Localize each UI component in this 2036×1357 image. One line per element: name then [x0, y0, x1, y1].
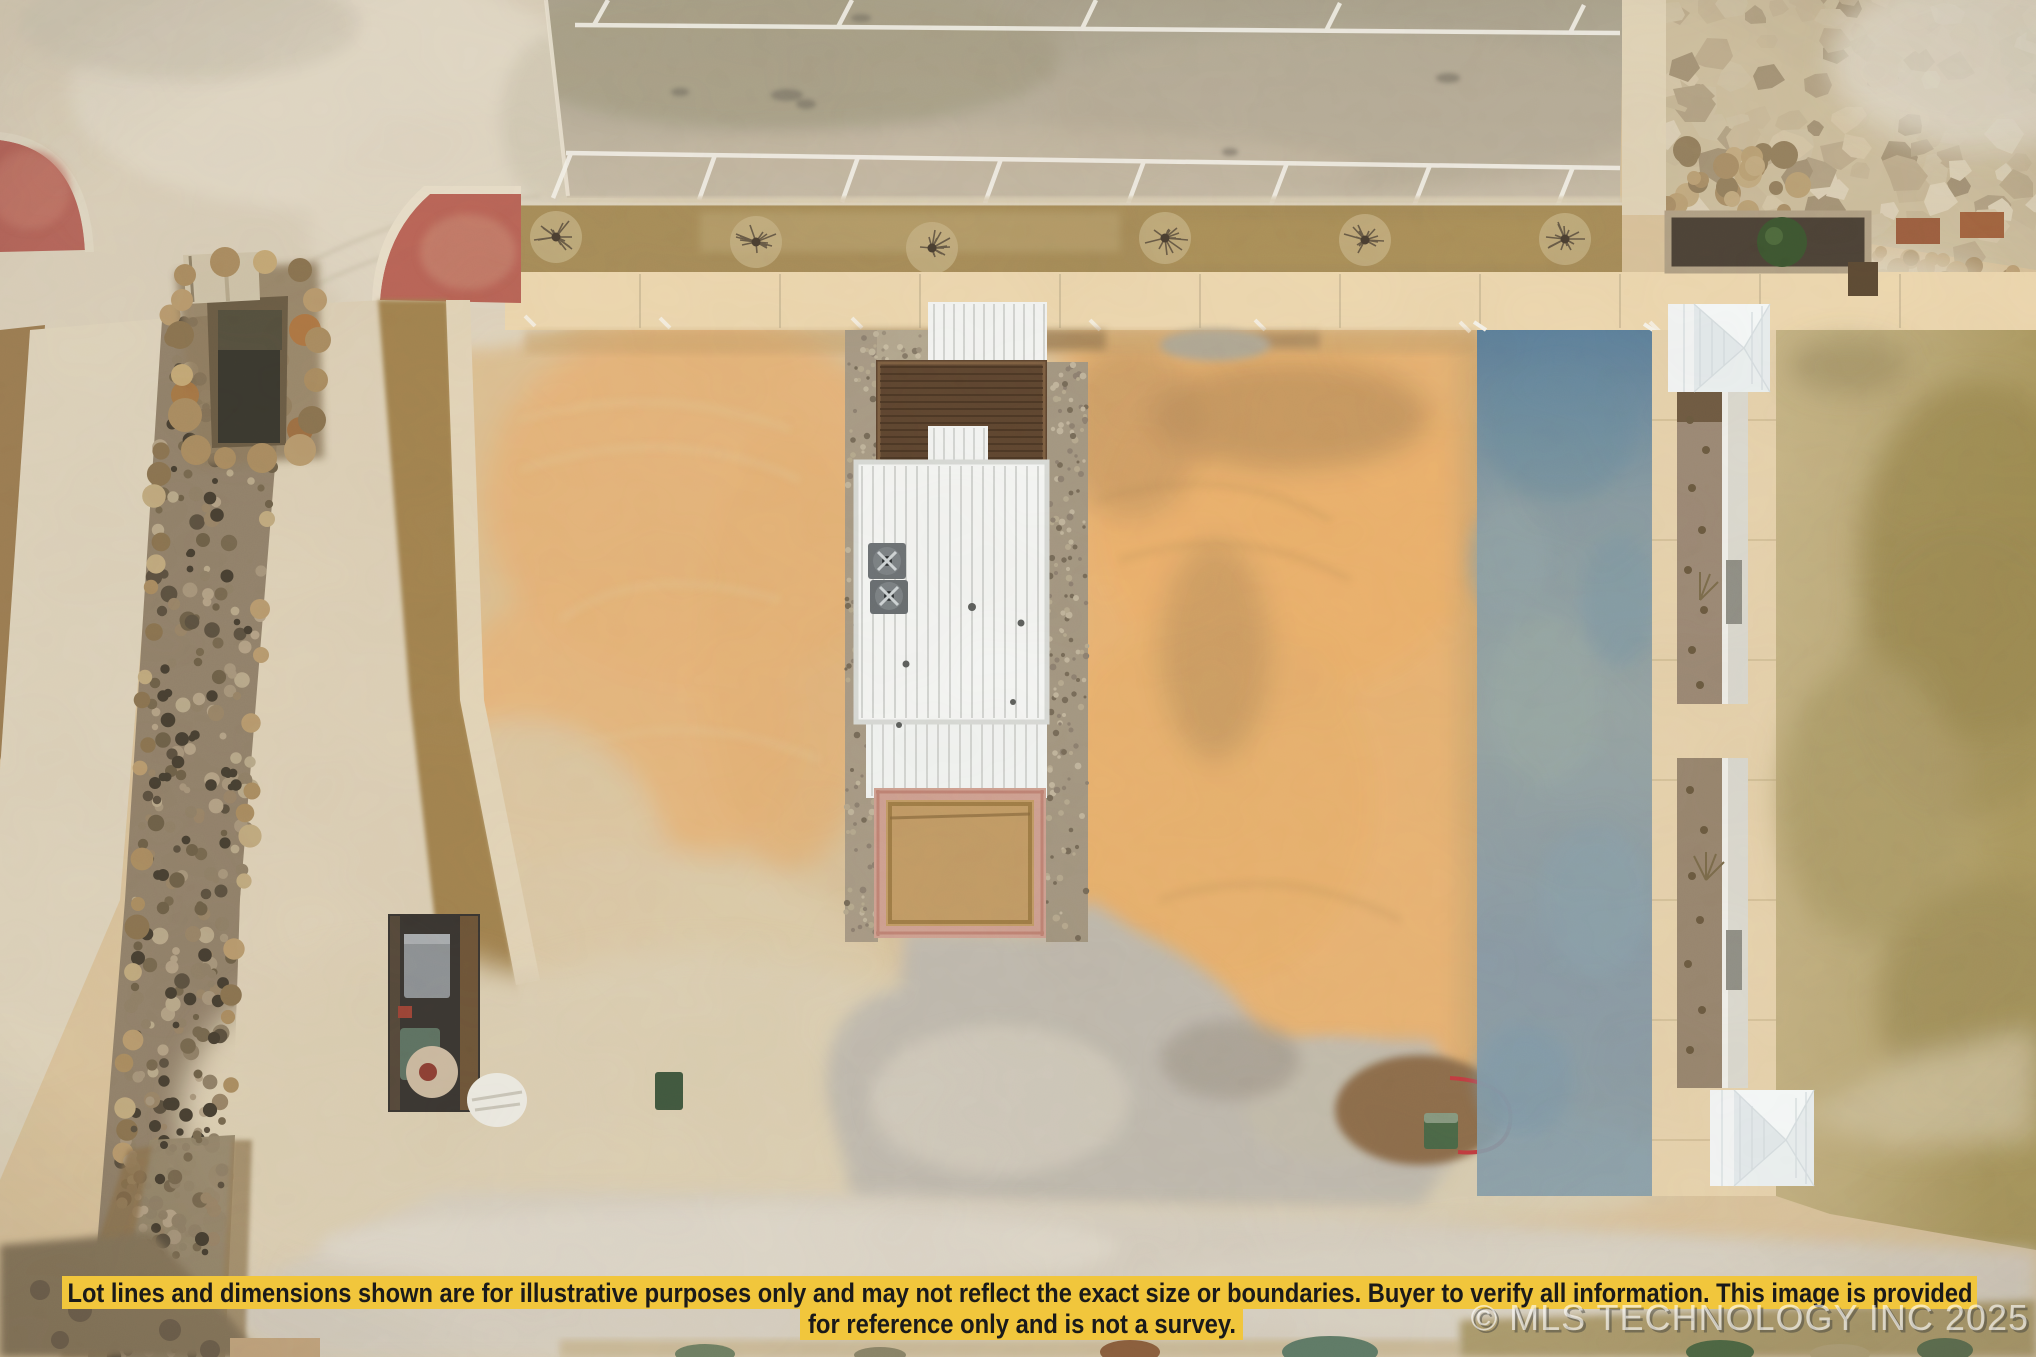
svg-text:for reference only and is not: for reference only and is not a survey. [808, 1309, 1236, 1339]
svg-text:© MLS TECHNOLOGY INC 2025: © MLS TECHNOLOGY INC 2025 [1471, 1297, 2029, 1338]
